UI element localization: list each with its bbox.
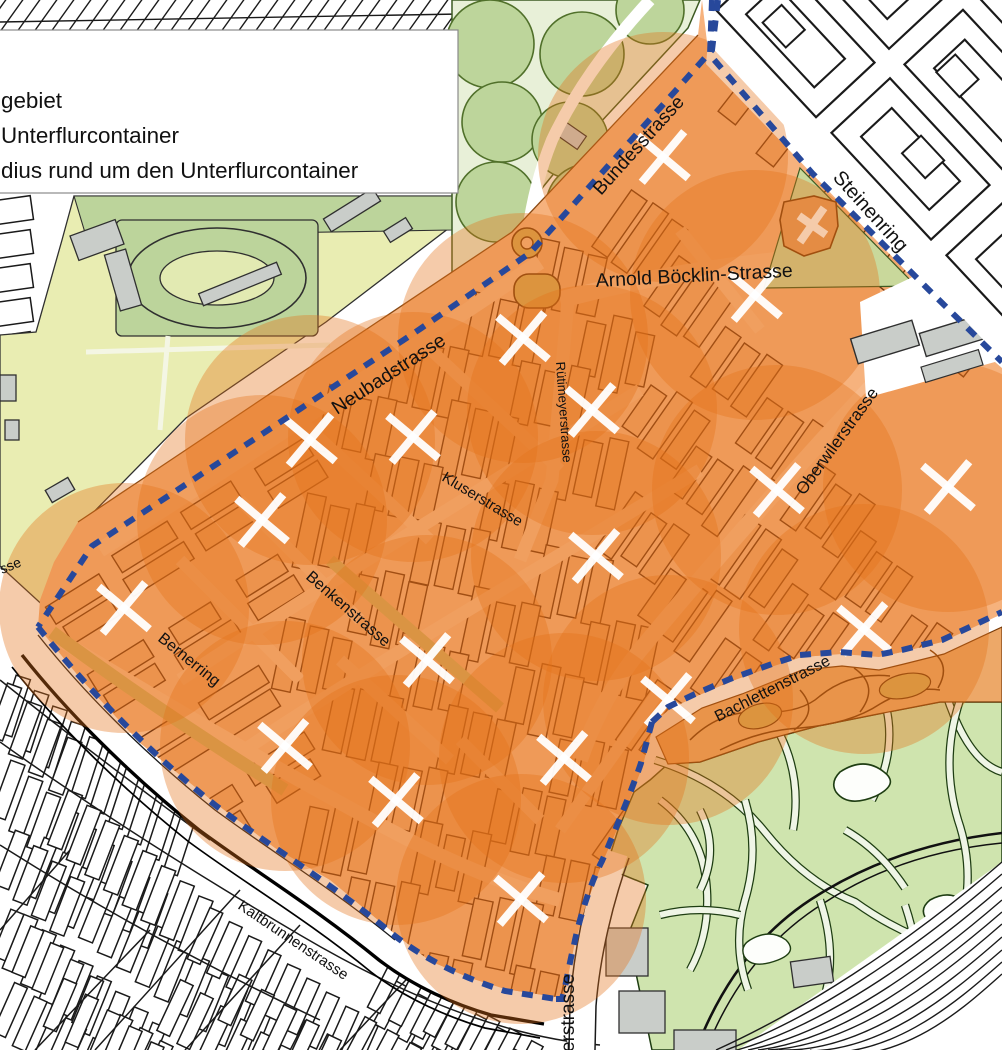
svg-text:erstrasse: erstrasse — [558, 974, 579, 1050]
svg-text:dius rund um den Unterflurcont: dius rund um den Unterflurcontainer — [1, 158, 359, 183]
svg-text:Unterflurcontainer: Unterflurcontainer — [1, 123, 180, 148]
svg-text:gebiet: gebiet — [1, 88, 63, 113]
